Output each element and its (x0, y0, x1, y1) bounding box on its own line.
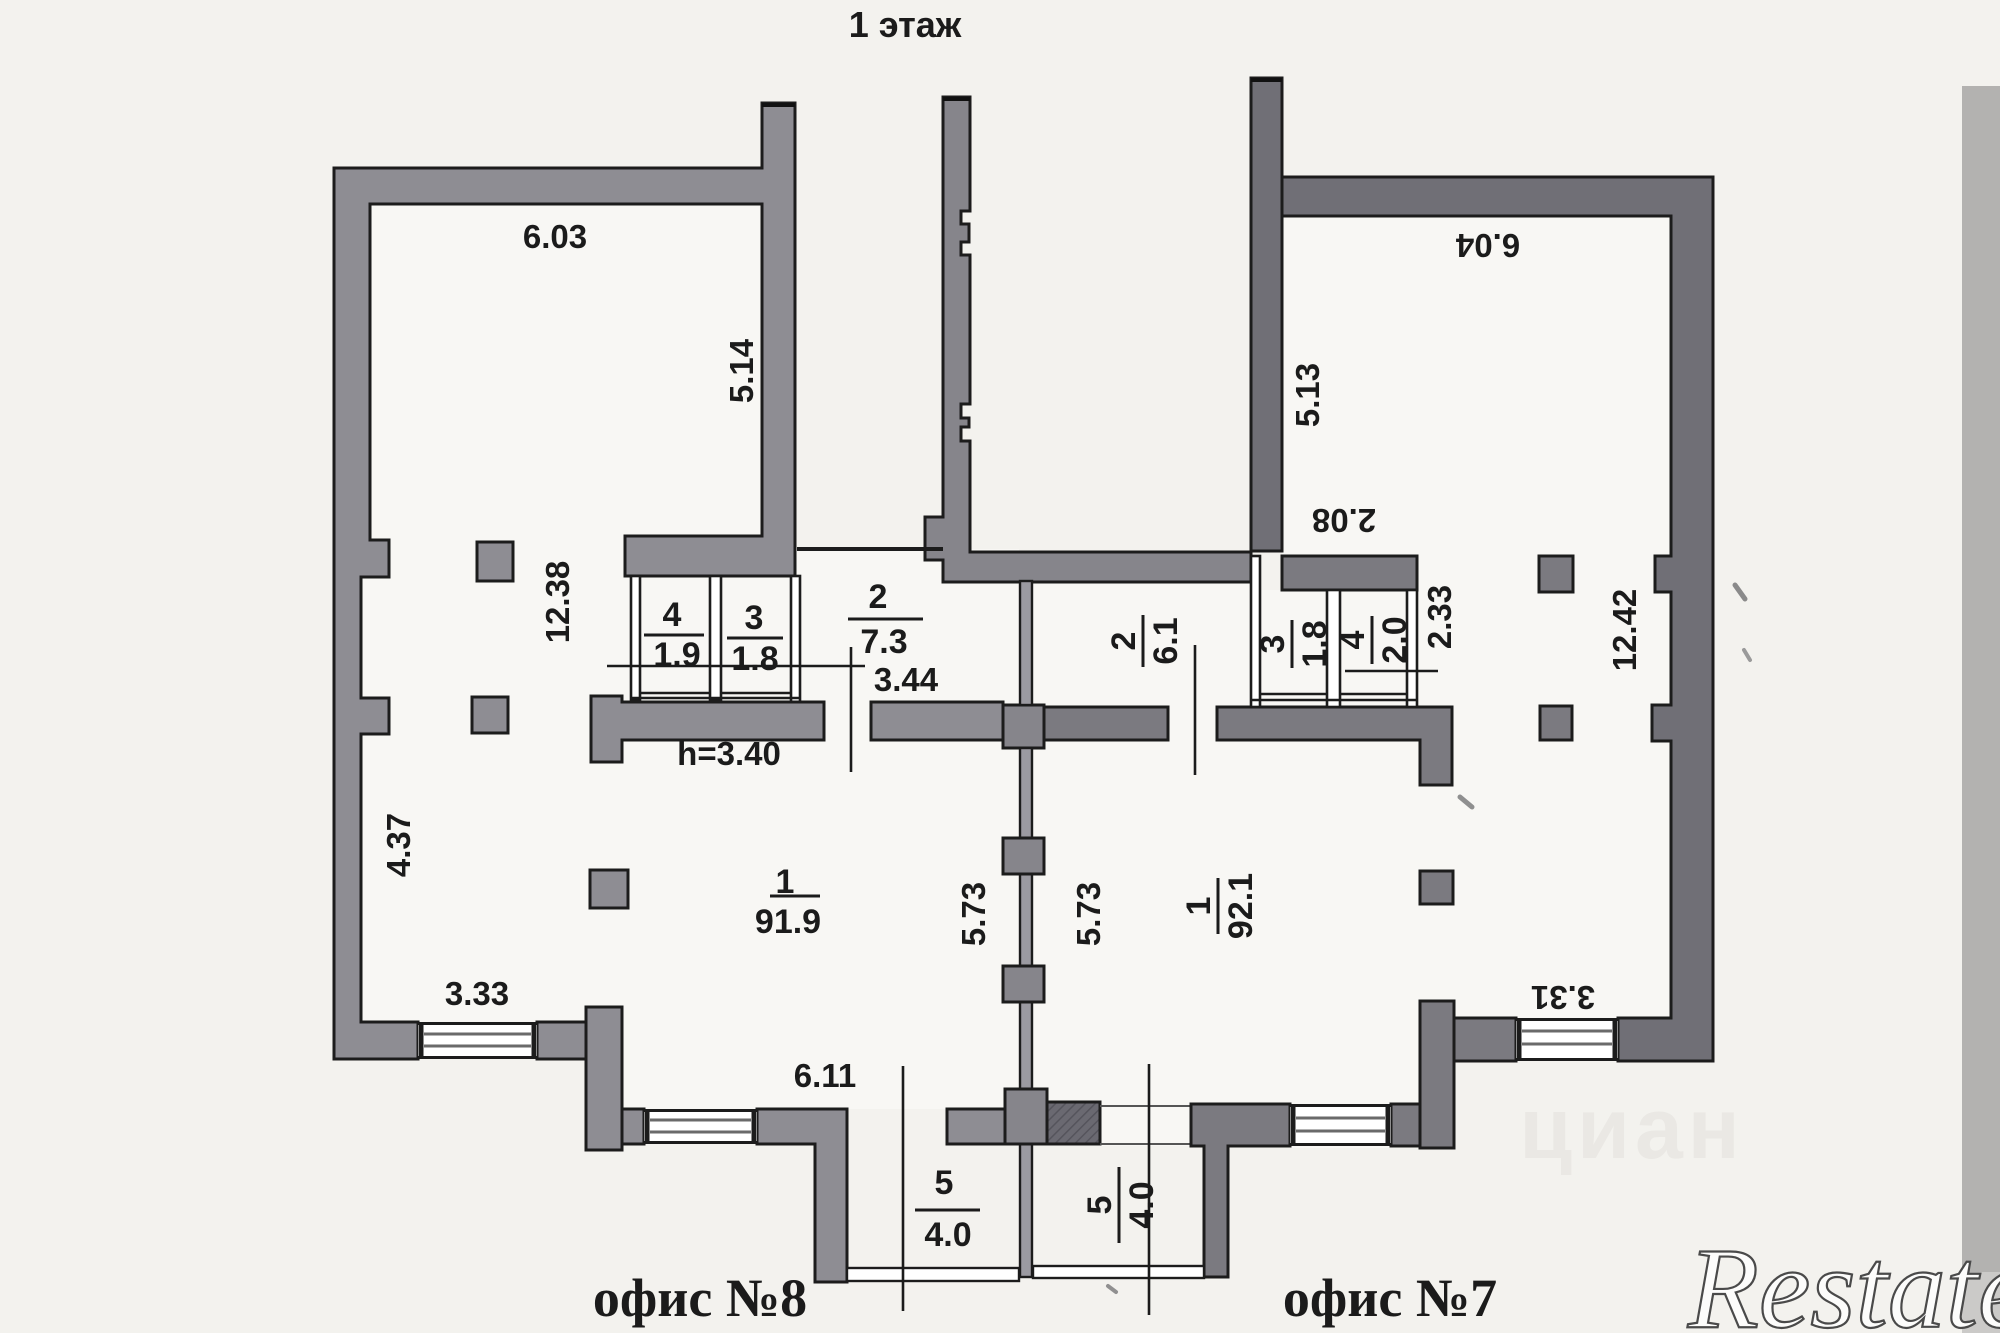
svg-text:3.33: 3.33 (445, 975, 509, 1012)
svg-text:6.11: 6.11 (794, 1057, 856, 1094)
svg-text:3: 3 (745, 599, 764, 637)
svg-text:4: 4 (1334, 630, 1372, 649)
svg-text:3.44: 3.44 (874, 661, 939, 698)
svg-text:5.73: 5.73 (955, 882, 992, 946)
svg-text:2.0: 2.0 (1376, 616, 1414, 663)
svg-text:2: 2 (1105, 632, 1143, 651)
svg-text:офис №8: офис №8 (593, 1268, 807, 1328)
svg-text:2.33: 2.33 (1421, 585, 1458, 649)
svg-text:12.38: 12.38 (539, 561, 576, 644)
svg-text:5.73: 5.73 (1070, 882, 1107, 946)
svg-text:1.8: 1.8 (731, 640, 778, 678)
svg-text:6.03: 6.03 (523, 218, 587, 255)
svg-text:5: 5 (935, 1164, 954, 1202)
svg-text:4: 4 (663, 596, 682, 634)
svg-text:2: 2 (869, 578, 888, 616)
svg-text:h=3.40: h=3.40 (677, 735, 781, 772)
svg-text:1 этаж: 1 этаж (849, 4, 962, 45)
svg-text:5: 5 (1081, 1196, 1119, 1215)
svg-text:3: 3 (1254, 635, 1292, 654)
svg-text:6.1: 6.1 (1147, 617, 1185, 664)
svg-text:92.1: 92.1 (1222, 873, 1260, 939)
svg-text:циан: циан (1519, 1081, 1745, 1177)
svg-text:1: 1 (1180, 897, 1218, 916)
svg-text:1.8: 1.8 (1296, 620, 1334, 667)
svg-text:4.0: 4.0 (1123, 1181, 1161, 1228)
svg-text:4.0: 4.0 (924, 1216, 971, 1254)
svg-text:91.9: 91.9 (755, 903, 821, 941)
svg-text:2.08: 2.08 (1312, 502, 1376, 539)
svg-text:офис №7: офис №7 (1283, 1268, 1497, 1328)
svg-text:1.9: 1.9 (653, 636, 700, 674)
svg-text:6.04: 6.04 (1455, 227, 1520, 264)
svg-text:7.3: 7.3 (860, 623, 907, 661)
svg-text:5.13: 5.13 (1289, 363, 1326, 427)
svg-text:12.42: 12.42 (1606, 589, 1643, 672)
svg-text:Restate: Restate (1687, 1225, 2000, 1333)
svg-text:4.37: 4.37 (380, 813, 417, 877)
svg-text:5.14: 5.14 (723, 338, 760, 403)
svg-text:3.31: 3.31 (1531, 979, 1595, 1016)
